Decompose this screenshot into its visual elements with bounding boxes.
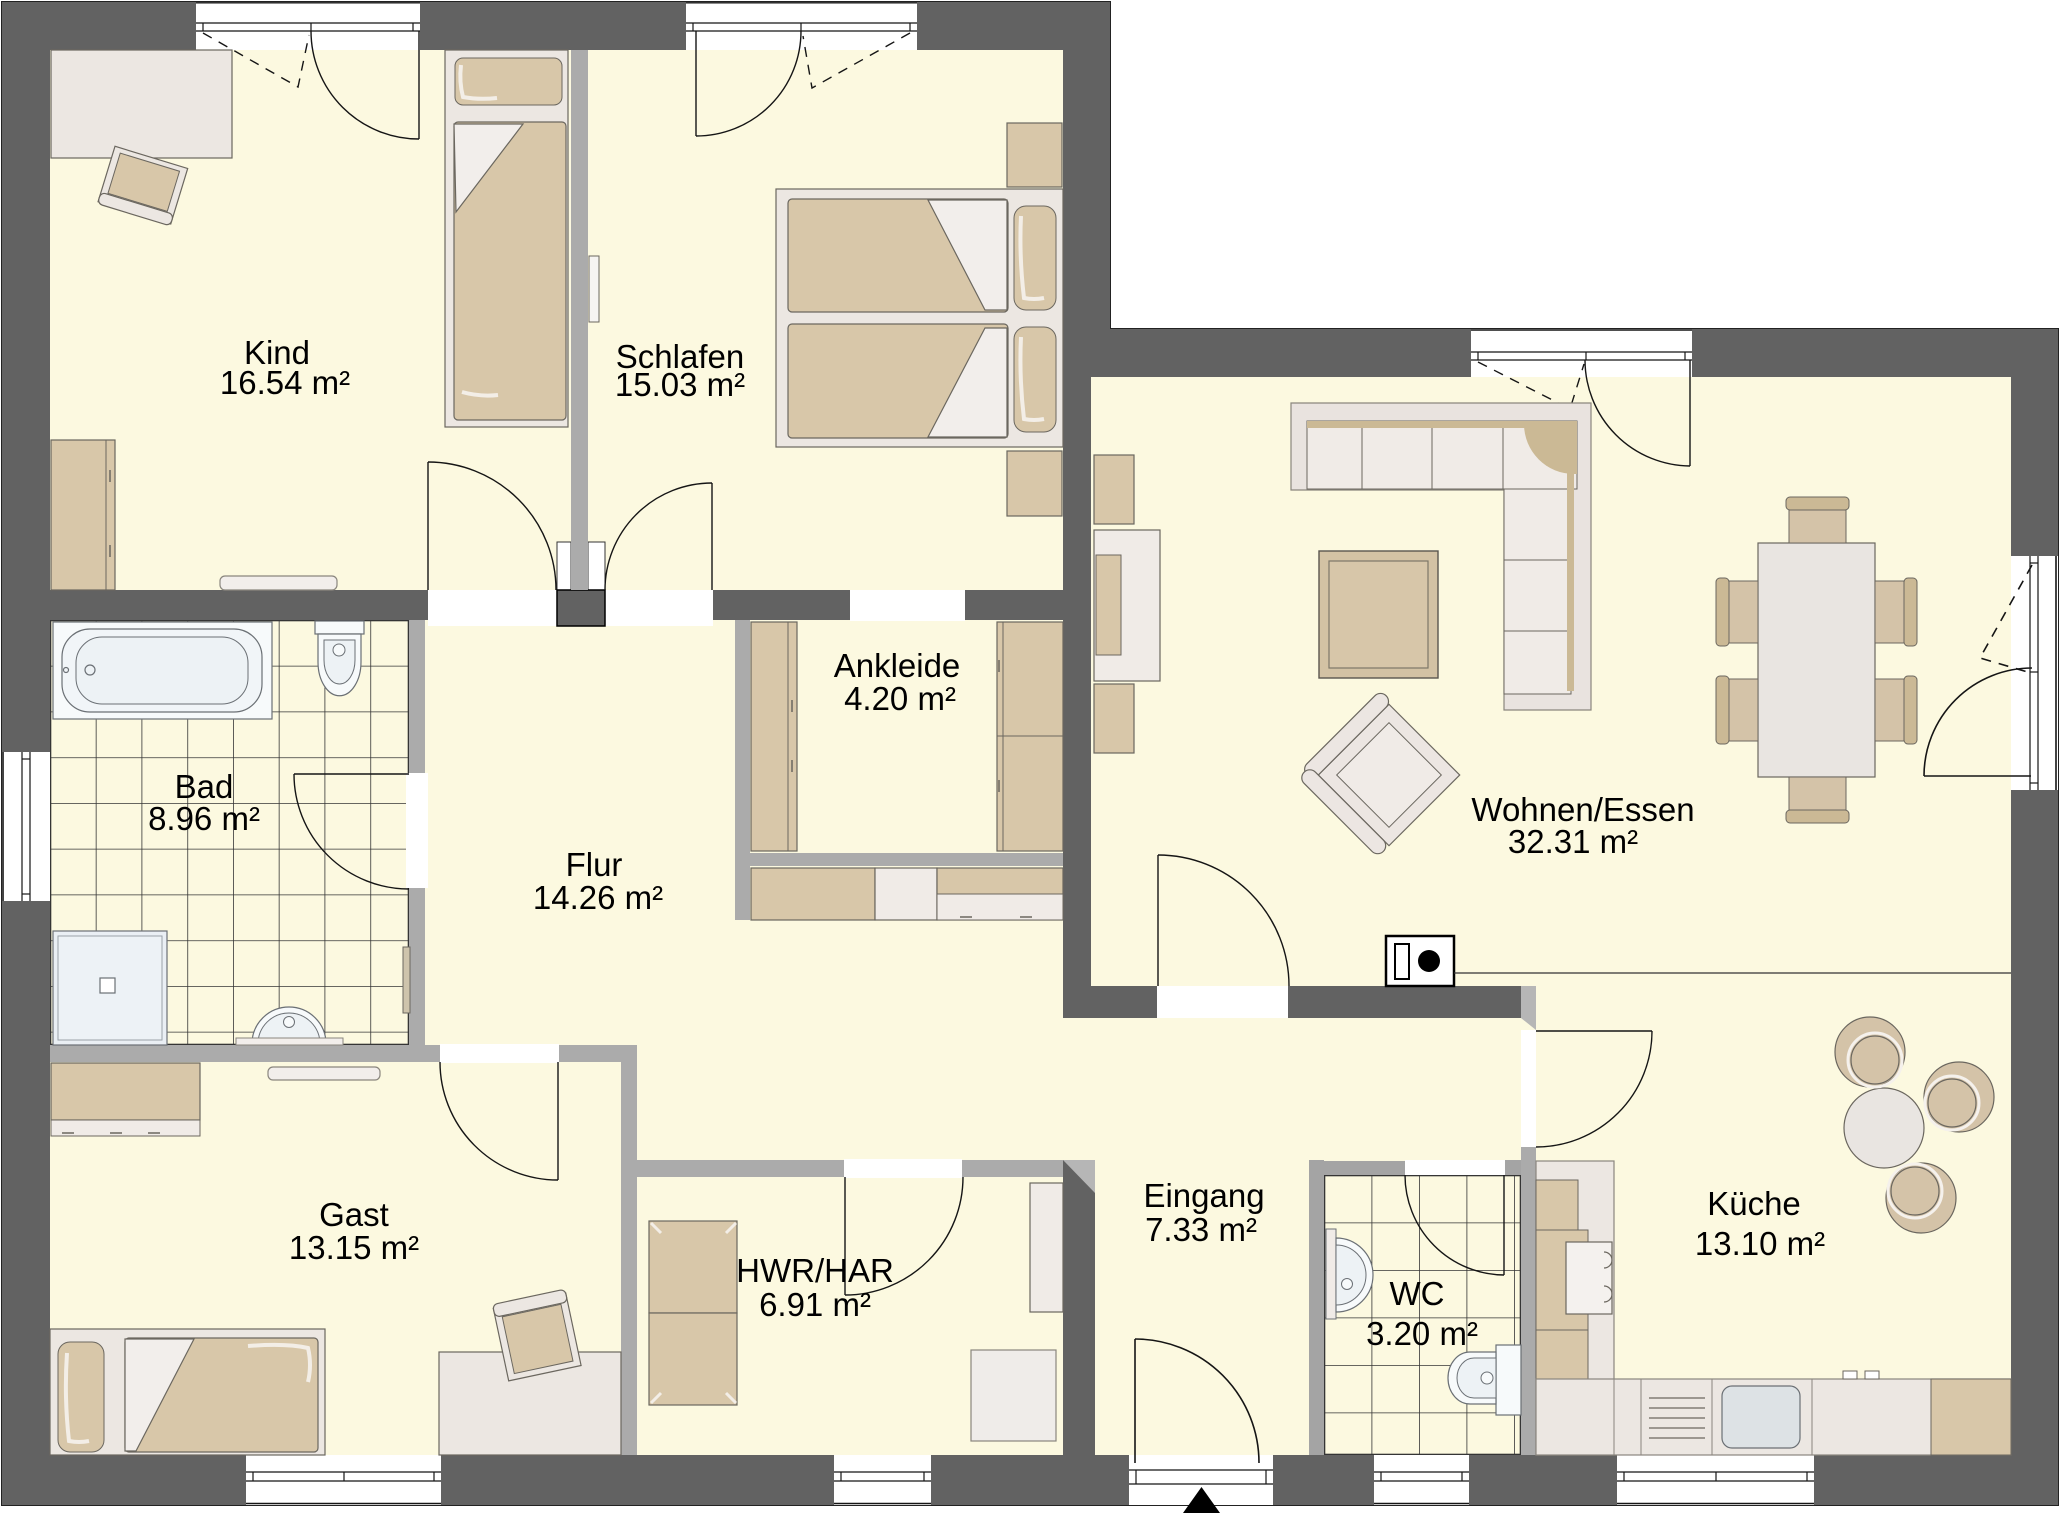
svg-text:13.15 m²: 13.15 m² bbox=[289, 1229, 419, 1266]
svg-text:WC: WC bbox=[1390, 1275, 1445, 1312]
svg-text:32.31 m²: 32.31 m² bbox=[1508, 823, 1638, 860]
svg-text:8.96 m²: 8.96 m² bbox=[148, 800, 260, 837]
svg-text:4.20 m²: 4.20 m² bbox=[844, 680, 956, 717]
svg-text:13.10 m²: 13.10 m² bbox=[1695, 1225, 1825, 1262]
svg-text:3.20 m²: 3.20 m² bbox=[1366, 1315, 1478, 1352]
svg-text:16.54 m²: 16.54 m² bbox=[220, 364, 350, 401]
svg-text:Gast: Gast bbox=[319, 1196, 389, 1233]
svg-text:14.26 m²: 14.26 m² bbox=[533, 879, 663, 916]
svg-text:15.03 m²: 15.03 m² bbox=[615, 366, 745, 403]
svg-text:HWR/HAR: HWR/HAR bbox=[736, 1252, 894, 1289]
svg-text:Eingang: Eingang bbox=[1143, 1177, 1264, 1214]
svg-text:7.33 m²: 7.33 m² bbox=[1145, 1211, 1257, 1248]
svg-text:Küche: Küche bbox=[1707, 1185, 1801, 1222]
svg-text:Flur: Flur bbox=[566, 846, 623, 883]
svg-text:Ankleide: Ankleide bbox=[834, 647, 961, 684]
svg-text:6.91 m²: 6.91 m² bbox=[759, 1286, 871, 1323]
